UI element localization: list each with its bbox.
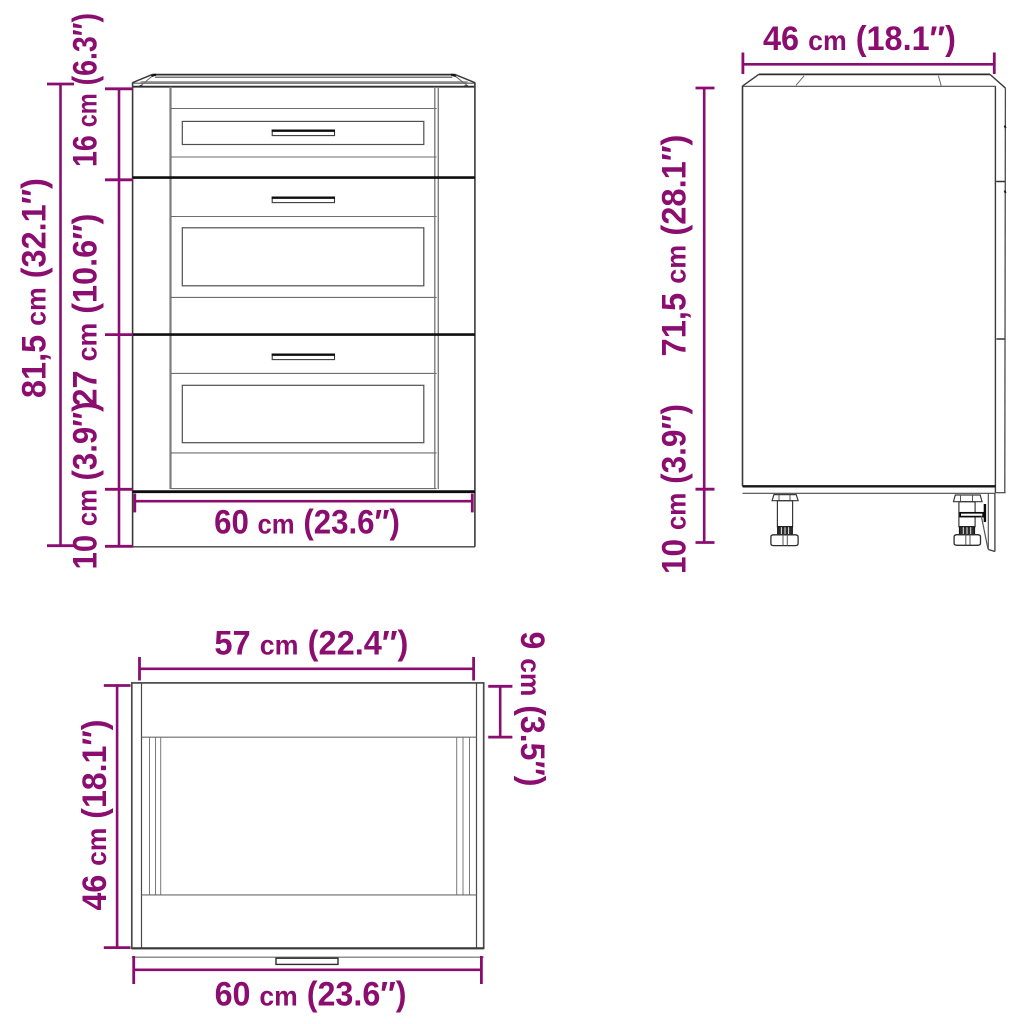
svg-text:10 cm (3.9″): 10 cm (3.9″) xyxy=(654,404,692,574)
svg-text:9 cm (3.5″): 9 cm (3.5″) xyxy=(514,632,552,787)
svg-text:57 cm (22.4″): 57 cm (22.4″) xyxy=(214,625,408,663)
svg-text:60 cm (23.6″): 60 cm (23.6″) xyxy=(215,976,407,1014)
svg-text:60 cm (23.6″): 60 cm (23.6″) xyxy=(214,502,400,541)
svg-text:81,5 cm (32.1″): 81,5 cm (32.1″) xyxy=(16,178,54,398)
svg-text:16 cm (6.3″): 16 cm (6.3″) xyxy=(66,13,104,167)
svg-text:46 cm (18.1″): 46 cm (18.1″) xyxy=(76,720,114,911)
svg-text:27 cm (10.6″): 27 cm (10.6″) xyxy=(67,214,105,407)
svg-text:46 cm (18.1″): 46 cm (18.1″) xyxy=(763,20,956,58)
svg-text:10 cm (3.9″): 10 cm (3.9″) xyxy=(65,402,104,570)
svg-text:71,5 cm (28.1″): 71,5 cm (28.1″) xyxy=(656,135,694,357)
